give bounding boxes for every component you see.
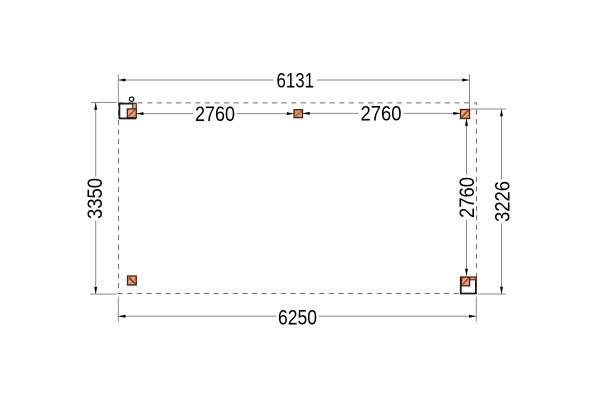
svg-text:6131: 6131 xyxy=(277,69,315,92)
svg-text:3350: 3350 xyxy=(84,178,107,219)
svg-text:2760: 2760 xyxy=(361,103,402,126)
svg-text:3226: 3226 xyxy=(492,181,515,222)
svg-text:2760: 2760 xyxy=(195,103,235,126)
svg-text:6250: 6250 xyxy=(278,307,317,330)
svg-text:2760: 2760 xyxy=(456,177,479,218)
